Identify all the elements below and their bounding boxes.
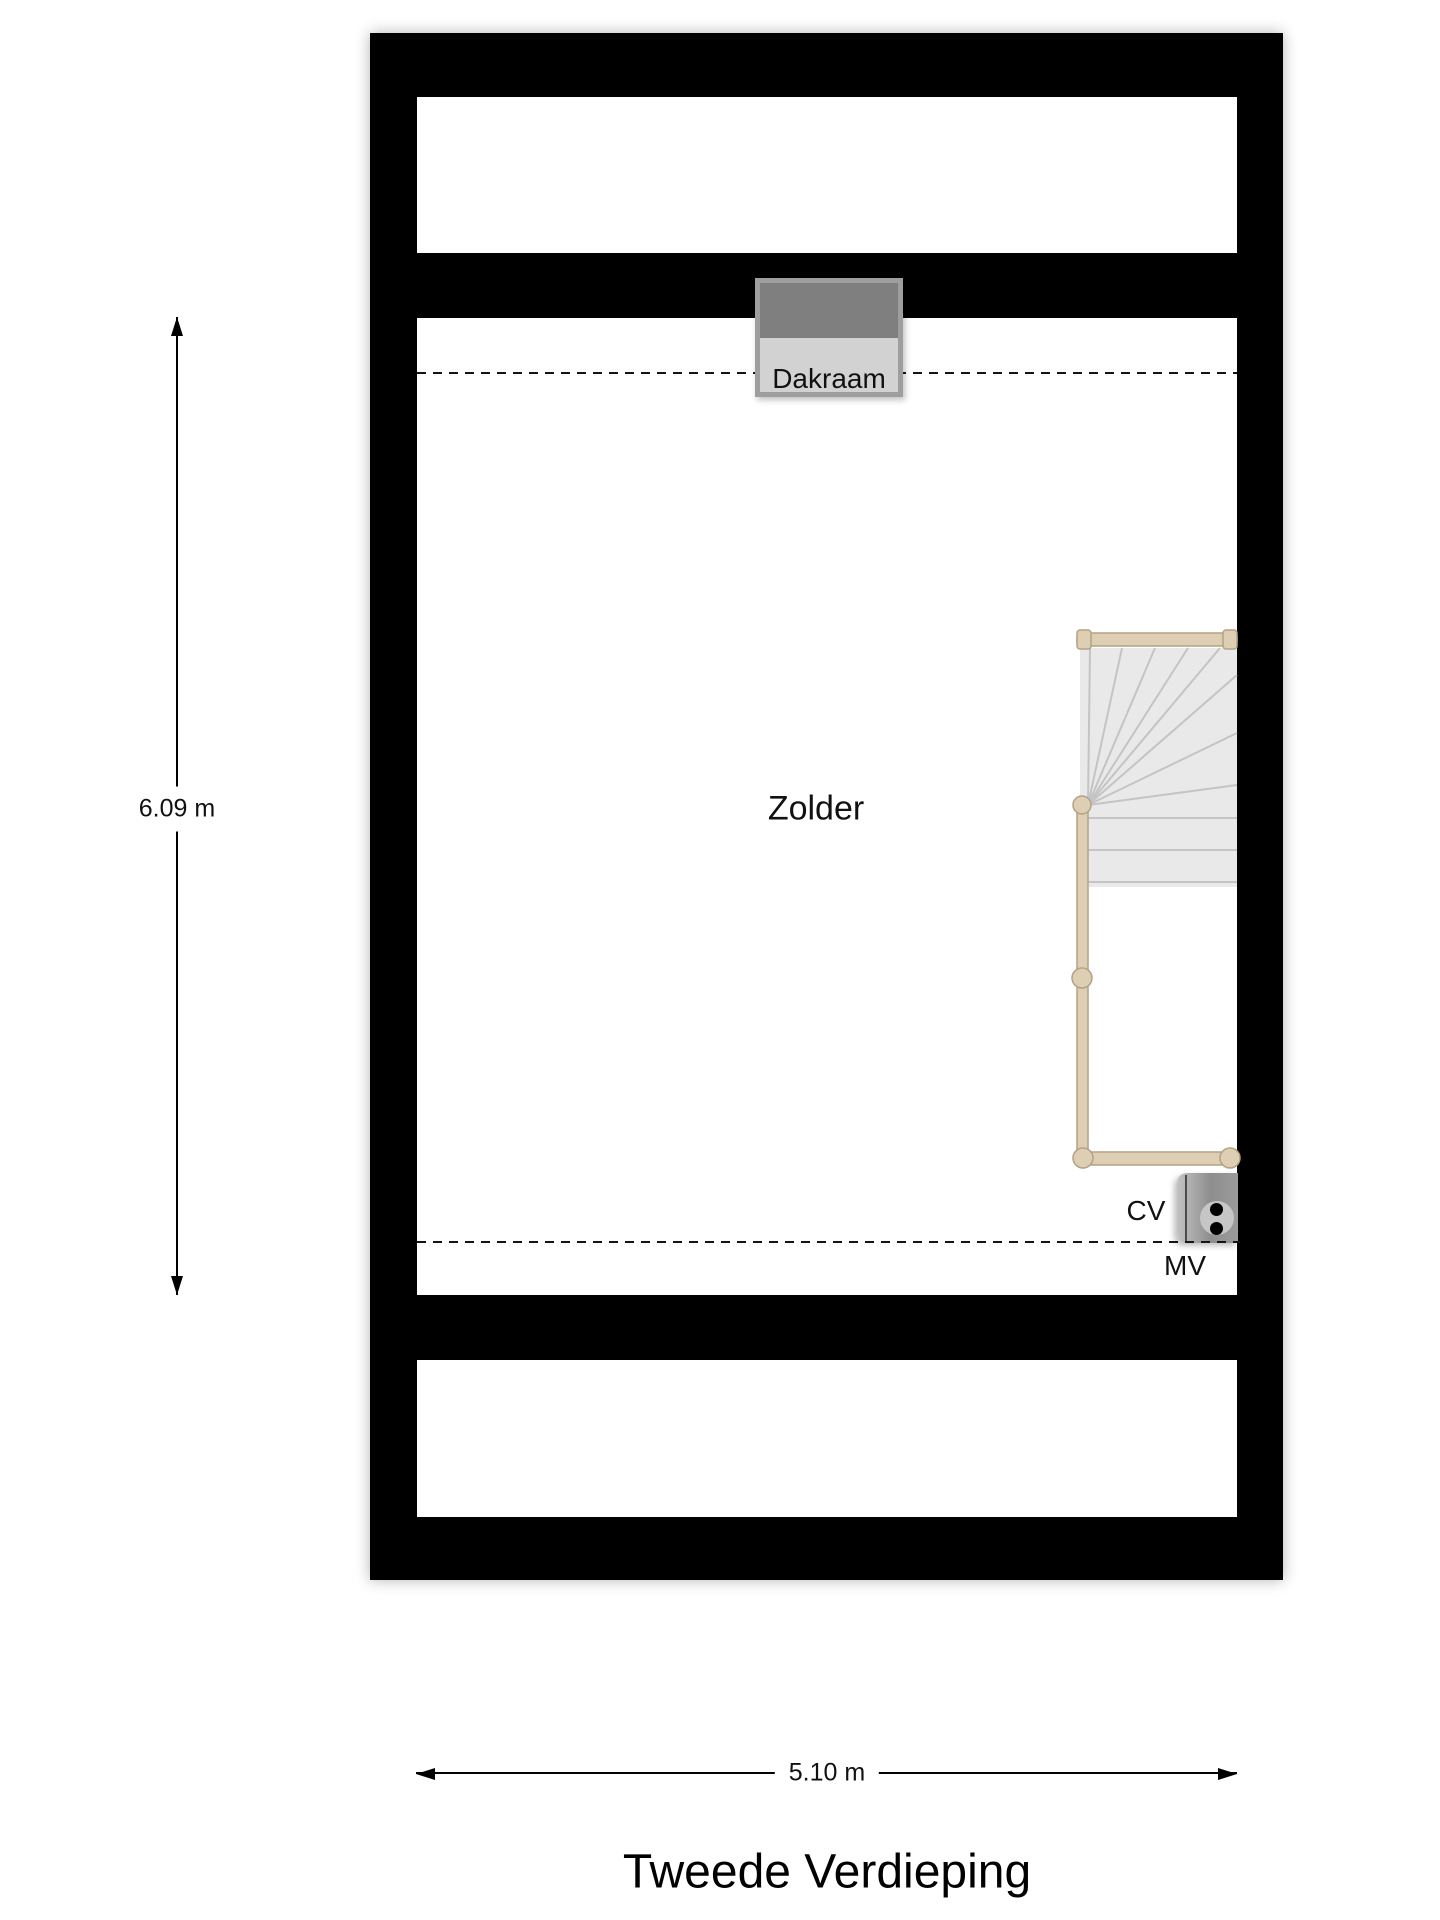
cv-boiler-unit	[1177, 1173, 1238, 1243]
cv-unit-connector	[1200, 1201, 1234, 1235]
floor-plan: Zolder Dakraam	[0, 0, 1440, 1920]
skylight-label: Dakraam	[772, 363, 886, 395]
arrow-up-icon	[171, 317, 183, 336]
ceiling-height-dashed-line-bottom	[417, 1241, 1240, 1243]
arrow-down-icon	[171, 1276, 183, 1295]
skylight-window: Dakraam	[755, 278, 903, 397]
vertical-dimension-label: 6.09 m	[136, 787, 218, 832]
cv-label: CV	[1127, 1195, 1166, 1227]
cv-unit-pipe-dot	[1210, 1222, 1223, 1235]
page-title: Tweede Verdieping	[623, 1845, 1031, 1900]
room-label: Zolder	[768, 790, 864, 829]
staircase	[1070, 625, 1245, 1175]
cv-unit-seam	[1185, 1175, 1187, 1241]
cv-unit-pipe-dot	[1210, 1203, 1223, 1216]
roof-strip-top	[417, 97, 1237, 253]
arrow-left-icon	[416, 1768, 435, 1780]
skylight-sash	[760, 283, 898, 338]
horizontal-dimension-label: 5.10 m	[775, 1757, 879, 1790]
mv-label: MV	[1164, 1250, 1206, 1282]
stairwell-opening	[1088, 887, 1237, 1152]
roof-strip-bottom	[417, 1360, 1237, 1517]
arrow-right-icon	[1218, 1768, 1237, 1780]
